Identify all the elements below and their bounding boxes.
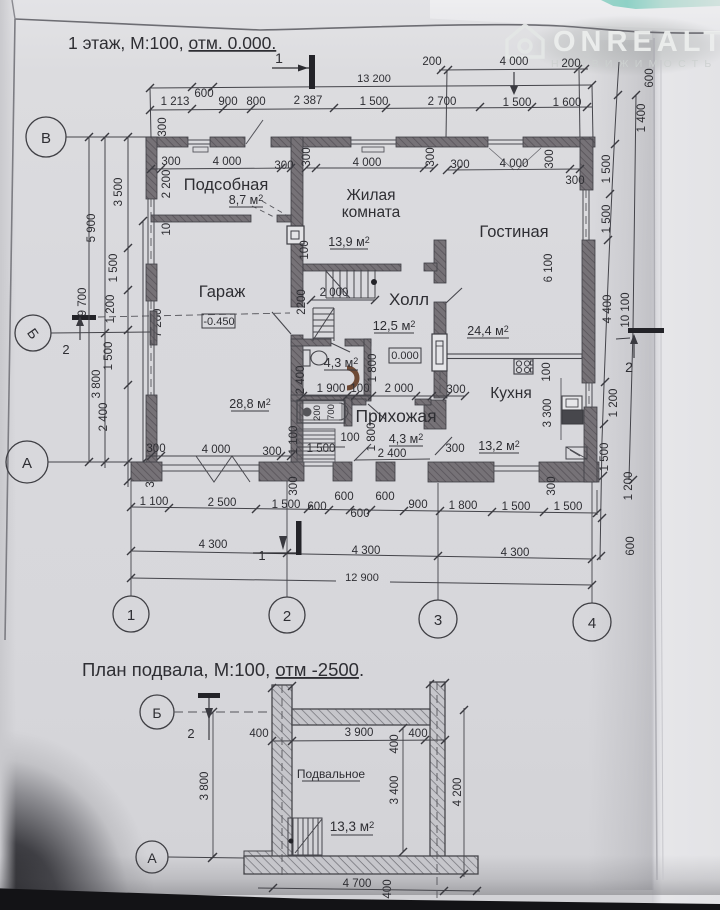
- svg-text:13,2 м2: 13,2 м2: [478, 439, 519, 453]
- svg-text:Б: Б: [152, 705, 161, 721]
- svg-text:4 000: 4 000: [202, 444, 231, 456]
- svg-text:1 900: 1 900: [317, 383, 346, 395]
- svg-text:600: 600: [625, 536, 637, 555]
- svg-text:300: 300: [450, 159, 469, 171]
- svg-text:1 500: 1 500: [108, 254, 120, 283]
- svg-text:12 900: 12 900: [345, 572, 379, 584]
- svg-text:3 900: 3 900: [345, 727, 374, 739]
- svg-text:900: 900: [408, 499, 427, 511]
- svg-text:300: 300: [157, 117, 169, 136]
- svg-text:400: 400: [408, 728, 427, 740]
- svg-text:А: А: [147, 850, 157, 866]
- svg-text:24,4 м2: 24,4 м2: [467, 324, 508, 338]
- svg-text:ONREALT: ONREALT: [553, 26, 720, 58]
- svg-text:13 200: 13 200: [357, 73, 391, 85]
- svg-text:100: 100: [340, 432, 359, 444]
- svg-text:Б: Б: [24, 325, 42, 342]
- svg-text:1 500: 1 500: [307, 443, 336, 455]
- svg-text:300: 300: [425, 147, 437, 166]
- svg-text:600: 600: [350, 508, 369, 520]
- svg-text:4 000: 4 000: [353, 157, 382, 169]
- svg-text:600: 600: [334, 491, 353, 503]
- svg-text:Жилая: Жилая: [346, 187, 395, 204]
- svg-text:1 600: 1 600: [553, 97, 582, 109]
- svg-text:2 400: 2 400: [378, 448, 407, 460]
- svg-text:8,7 м2: 8,7 м2: [229, 193, 263, 207]
- svg-text:2 000: 2 000: [320, 287, 349, 299]
- svg-text:100: 100: [541, 362, 553, 381]
- svg-text:4 700: 4 700: [343, 878, 372, 890]
- svg-text:2 400: 2 400: [295, 366, 307, 395]
- svg-text:6 100: 6 100: [543, 254, 555, 283]
- svg-text:12,5 м2: 12,5 м2: [373, 318, 416, 333]
- svg-text:4 300: 4 300: [199, 539, 228, 551]
- svg-text:4,3 м2: 4,3 м2: [324, 356, 358, 370]
- svg-text:2 200: 2 200: [161, 170, 173, 199]
- svg-text:13,3 м2: 13,3 м2: [330, 819, 375, 834]
- svg-text:300: 300: [288, 476, 300, 495]
- svg-text:2: 2: [625, 359, 633, 375]
- svg-text:2 387: 2 387: [294, 95, 323, 107]
- svg-text:1 500: 1 500: [601, 155, 613, 184]
- svg-text:900: 900: [218, 96, 237, 108]
- svg-text:План подвала, М:100, отм -2500: План подвала, М:100, отм -2500.: [82, 659, 364, 680]
- svg-text:0.000: 0.000: [391, 350, 419, 362]
- svg-text:300: 300: [146, 443, 165, 455]
- svg-text:1 500: 1 500: [554, 501, 583, 513]
- svg-text:3 300: 3 300: [542, 399, 554, 428]
- svg-text:300: 300: [445, 443, 464, 455]
- svg-text:1 100: 1 100: [288, 426, 300, 455]
- svg-text:5 900: 5 900: [86, 214, 98, 243]
- svg-text:1 500: 1 500: [601, 205, 613, 234]
- svg-text:2 000: 2 000: [385, 383, 414, 395]
- svg-text:300: 300: [544, 149, 556, 168]
- svg-text:Холл: Холл: [389, 290, 429, 309]
- svg-text:4 400: 4 400: [602, 295, 614, 324]
- svg-text:1 500: 1 500: [502, 501, 531, 513]
- svg-text:600: 600: [307, 501, 326, 513]
- svg-text:1 500: 1 500: [360, 96, 389, 108]
- svg-text:1 этаж, М:100, отм. 0.000.: 1 этаж, М:100, отм. 0.000.: [68, 33, 276, 53]
- svg-text:А: А: [22, 455, 32, 472]
- svg-text:2 400: 2 400: [98, 403, 110, 432]
- svg-text:10 100: 10 100: [620, 292, 632, 327]
- svg-text:4 000: 4 000: [500, 56, 529, 68]
- svg-text:4 000: 4 000: [213, 156, 242, 168]
- svg-text:1 500: 1 500: [503, 97, 532, 109]
- svg-text:Подсобная: Подсобная: [184, 176, 269, 194]
- svg-text:300: 300: [565, 175, 584, 187]
- svg-text:Подвальное: Подвальное: [297, 767, 366, 781]
- svg-text:комната: комната: [342, 204, 401, 221]
- svg-text:1 800: 1 800: [449, 500, 478, 512]
- svg-text:4 200: 4 200: [452, 778, 464, 807]
- svg-text:600: 600: [194, 88, 213, 100]
- svg-text:400: 400: [389, 734, 401, 753]
- svg-text:100: 100: [350, 383, 369, 395]
- svg-text:200: 200: [312, 405, 323, 421]
- svg-text:100: 100: [299, 240, 311, 259]
- svg-text:1 213: 1 213: [161, 96, 190, 108]
- svg-text:800: 800: [246, 96, 265, 108]
- svg-text:2200: 2200: [296, 289, 308, 315]
- svg-text:200: 200: [561, 58, 580, 70]
- svg-text:Кухня: Кухня: [490, 385, 531, 402]
- svg-text:300: 300: [546, 476, 558, 495]
- svg-text:Гостиная: Гостиная: [479, 223, 548, 241]
- svg-text:1 200: 1 200: [623, 472, 635, 501]
- svg-text:28,8 м2: 28,8 м2: [229, 397, 270, 411]
- svg-text:1 200: 1 200: [608, 389, 620, 418]
- svg-text:3 400: 3 400: [389, 776, 401, 805]
- svg-text:Гараж: Гараж: [199, 283, 246, 301]
- svg-text:1: 1: [275, 50, 283, 66]
- svg-text:1: 1: [127, 607, 135, 624]
- svg-text:1 800: 1 800: [367, 354, 379, 383]
- svg-text:1 100: 1 100: [140, 496, 169, 508]
- svg-text:300: 300: [301, 147, 313, 166]
- svg-text:-0.450: -0.450: [203, 316, 234, 328]
- svg-text:400: 400: [382, 879, 394, 898]
- svg-text:3: 3: [434, 612, 442, 629]
- svg-text:9 700: 9 700: [77, 288, 89, 317]
- svg-text:3 500: 3 500: [113, 178, 125, 207]
- svg-text:1 200: 1 200: [105, 295, 117, 324]
- svg-text:600: 600: [644, 68, 656, 87]
- svg-text:В: В: [41, 130, 51, 147]
- svg-text:700: 700: [326, 404, 337, 420]
- svg-text:300: 300: [274, 160, 293, 172]
- svg-text:13,9 м2: 13,9 м2: [328, 235, 369, 249]
- svg-text:1 500: 1 500: [599, 443, 611, 472]
- svg-text:2: 2: [187, 726, 194, 741]
- svg-text:2 700: 2 700: [428, 96, 457, 108]
- svg-text:3 800: 3 800: [199, 772, 211, 801]
- svg-text:2: 2: [283, 608, 291, 625]
- svg-text:1 500: 1 500: [272, 499, 301, 511]
- svg-text:3 800: 3 800: [91, 370, 103, 399]
- svg-text:2: 2: [62, 342, 69, 357]
- svg-text:200: 200: [422, 56, 441, 68]
- svg-text:400: 400: [249, 728, 268, 740]
- svg-text:4: 4: [588, 615, 596, 632]
- svg-text:600: 600: [375, 491, 394, 503]
- svg-text:1 400: 1 400: [636, 104, 648, 133]
- svg-text:4 300: 4 300: [352, 545, 381, 557]
- svg-text:4 300: 4 300: [501, 547, 530, 559]
- svg-text:1 500: 1 500: [103, 342, 115, 371]
- svg-text:1: 1: [258, 548, 265, 563]
- svg-text:4 000: 4 000: [500, 158, 529, 170]
- svg-text:2 500: 2 500: [208, 497, 237, 509]
- svg-text:4,3 м2: 4,3 м2: [389, 432, 423, 446]
- svg-text:1 800: 1 800: [366, 423, 378, 452]
